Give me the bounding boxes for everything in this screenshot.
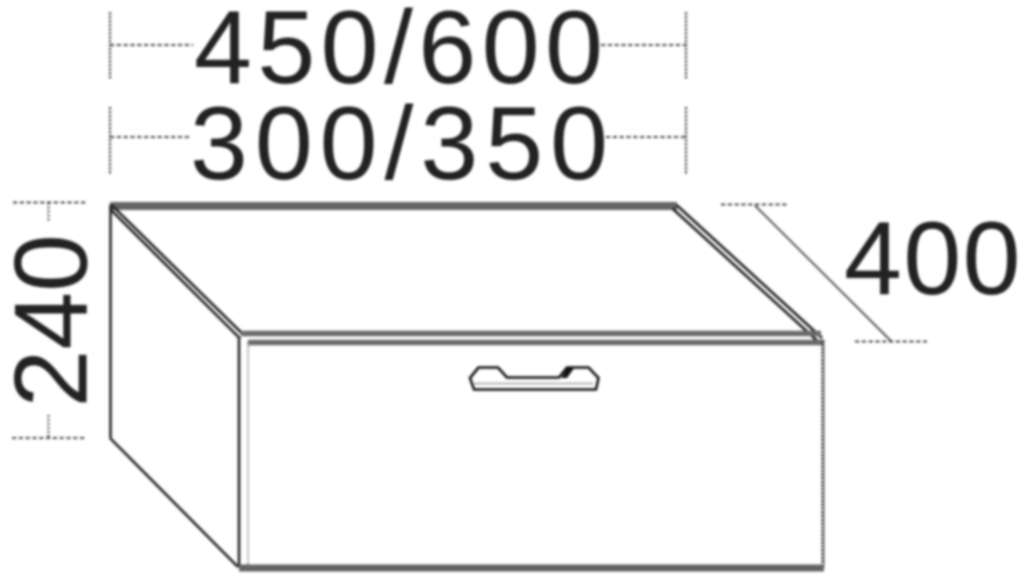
svg-text:240: 240: [0, 234, 110, 408]
svg-text:300/350: 300/350: [190, 86, 615, 202]
svg-text:400: 400: [844, 201, 1022, 317]
